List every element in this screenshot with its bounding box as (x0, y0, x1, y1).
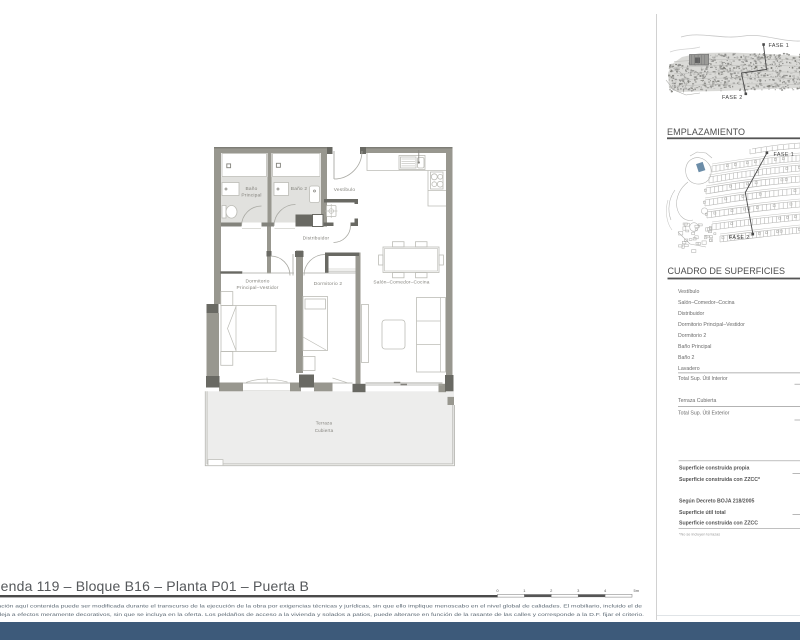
svg-text:*No se incluyen terrazas: *No se incluyen terrazas (679, 532, 720, 536)
svg-text:Total Sup. Útil Interior: Total Sup. Útil Interior (678, 375, 728, 382)
svg-text:Superficie útil total: Superficie útil total (679, 510, 726, 516)
svg-text:FASE 2: FASE 2 (722, 95, 743, 101)
svg-text:Distribuidor: Distribuidor (678, 311, 705, 317)
svg-text:Vestíbulo: Vestíbulo (334, 187, 356, 193)
svg-text:Terraza Cubierta: Terraza Cubierta (678, 398, 716, 404)
svg-text:5m: 5m (634, 588, 640, 593)
svg-text:Dormitorio 2: Dormitorio 2 (678, 333, 706, 339)
svg-text:Distribuidor: Distribuidor (303, 236, 330, 242)
svg-text:Total Sup. Útil Exterior: Total Sup. Útil Exterior (678, 409, 730, 416)
svg-text:Salón–Comedor–Cocina: Salón–Comedor–Cocina (678, 300, 735, 306)
svg-text:Dormitorio 2: Dormitorio 2 (314, 281, 343, 287)
svg-text:Baño 2: Baño 2 (678, 355, 695, 361)
svg-text:Superficie construida con ZZCC: Superficie construida con ZZCC* (679, 477, 761, 483)
svg-text:Baño: Baño (245, 186, 257, 192)
svg-text:Cubierta: Cubierta (315, 428, 334, 433)
svg-text:Dormitorio: Dormitorio (245, 279, 269, 285)
svg-text:Salón–Comedor–Cocina: Salón–Comedor–Cocina (373, 280, 429, 286)
svg-text:Lavadero: Lavadero (678, 366, 700, 372)
svg-text:Vestíbulo: Vestíbulo (678, 289, 699, 295)
svg-text:Principal–Vestidor: Principal–Vestidor (237, 285, 279, 291)
svg-text:Superficie construida con ZZCC: Superficie construida con ZZCC (679, 520, 758, 526)
svg-text:Baño 2: Baño 2 (291, 186, 308, 192)
svg-text:2: 2 (550, 588, 553, 593)
svg-text:Según Decreto BOJA 218/2005: Según Decreto BOJA 218/2005 (679, 498, 754, 504)
svg-text:Baño Principal: Baño Principal (678, 344, 711, 350)
svg-text:FASE 1: FASE 1 (774, 152, 795, 158)
svg-text:FASE 1: FASE 1 (769, 43, 790, 49)
svg-text:3: 3 (577, 588, 580, 593)
svg-text:Vivienda 119 – Bloque B16 – Pl: Vivienda 119 – Bloque B16 – Planta P01 –… (0, 578, 309, 594)
svg-text:FASE 2: FASE 2 (729, 235, 750, 241)
svg-text:0: 0 (496, 588, 499, 593)
svg-text:4: 4 (604, 588, 607, 593)
svg-text:mación aquí contenida puede se: mación aquí contenida puede ser modifica… (0, 603, 643, 608)
svg-text:Dormitorio Principal–Vestidor: Dormitorio Principal–Vestidor (678, 322, 745, 328)
svg-text:Superficie construida propia: Superficie construida propia (679, 465, 749, 471)
svg-text:EMPLAZAMIENTO: EMPLAZAMIENTO (667, 127, 745, 137)
svg-text:CUADRO DE SUPERFICIES: CUADRO DE SUPERFICIES (668, 266, 786, 276)
svg-text:Terraza: Terraza (316, 421, 333, 426)
svg-text:refleja a efectos meramente de: refleja a efectos meramente decorativos,… (0, 612, 644, 617)
svg-text:1: 1 (523, 588, 526, 593)
svg-text:Principal: Principal (241, 192, 261, 198)
